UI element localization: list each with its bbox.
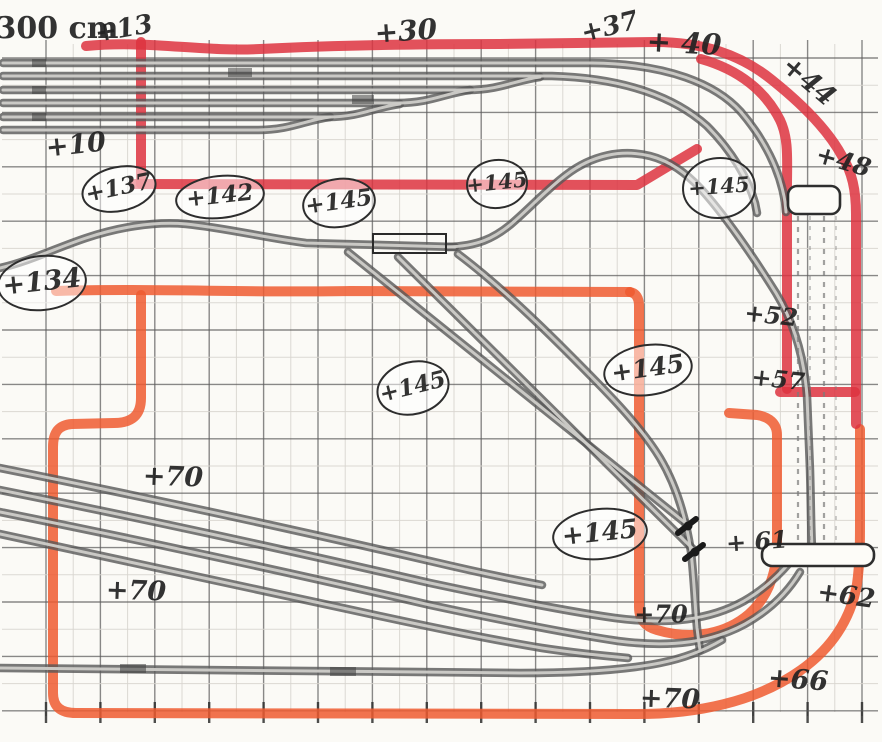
scanned-track-plan-page: 300 cm+13+30+37+ 40+44+48+10+137+142+145… [0,0,882,742]
turnout-marker [228,68,252,77]
elevation-label-40: + 40 [646,24,722,62]
elevation-label-145-c-text: +145 [687,171,750,200]
turnout-marker [330,667,356,676]
turnout-marker [352,95,374,104]
elevation-label-52: +52 [743,298,799,332]
turnout-marker [120,664,146,673]
elevation-label-61-text: + 61 [725,524,789,557]
elevation-label-30-text: +30 [374,12,439,49]
elevation-label-70-a-text: +70 [142,460,203,493]
elevation-label-70-a: +70 [142,460,203,493]
elevation-label-70-c: +70 [634,600,688,629]
track-end-tie [32,59,46,67]
elevation-label-66: +66 [767,662,829,697]
elevation-label-70-c-text: +70 [634,600,688,629]
buffer-stop-1-end [684,522,693,531]
elevation-label-70-d-text: +70 [639,682,700,715]
elevation-label-52-text: +52 [743,298,799,332]
elevation-label-70-b: +70 [105,574,166,607]
elevation-label-61: + 61 [725,524,789,557]
elevation-label-10-text: +10 [44,126,107,163]
track-end-tie [32,86,46,94]
elevation-label-40-text: + 40 [646,24,722,62]
elevation-label-70-b-text: +70 [105,574,166,607]
elevation-label-57: +57 [750,362,807,396]
buffer-stop-2-end [691,548,700,557]
track-end-tie [32,113,46,121]
track-plan-drawing: 300 cm+13+30+37+ 40+44+48+10+137+142+145… [0,0,882,742]
tunnel-portal-upper [788,186,840,214]
elevation-label-70-d: +70 [639,682,700,715]
elevation-label-57-text: +57 [750,362,807,396]
elevation-label-10: +10 [44,126,107,163]
elevation-label-66-text: +66 [767,662,829,697]
elevation-label-30: +30 [374,12,439,49]
